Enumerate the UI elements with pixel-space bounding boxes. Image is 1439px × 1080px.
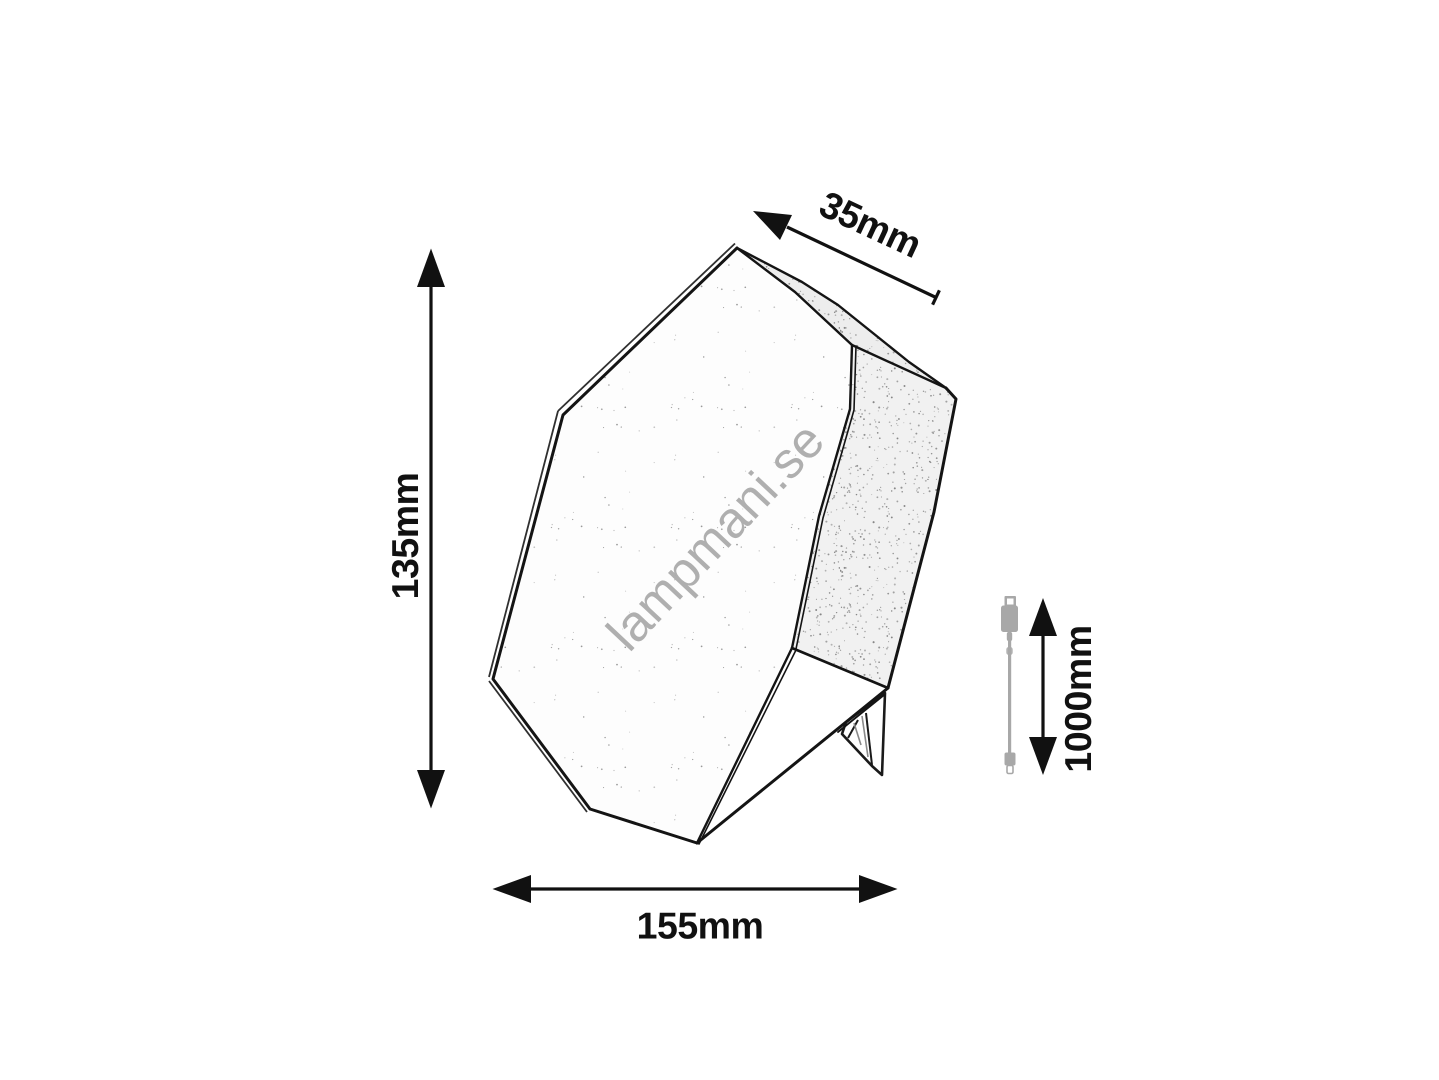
svg-text:155mm: 155mm	[637, 905, 764, 947]
svg-text:1000mm: 1000mm	[1057, 625, 1099, 772]
svg-text:135mm: 135mm	[384, 473, 426, 600]
